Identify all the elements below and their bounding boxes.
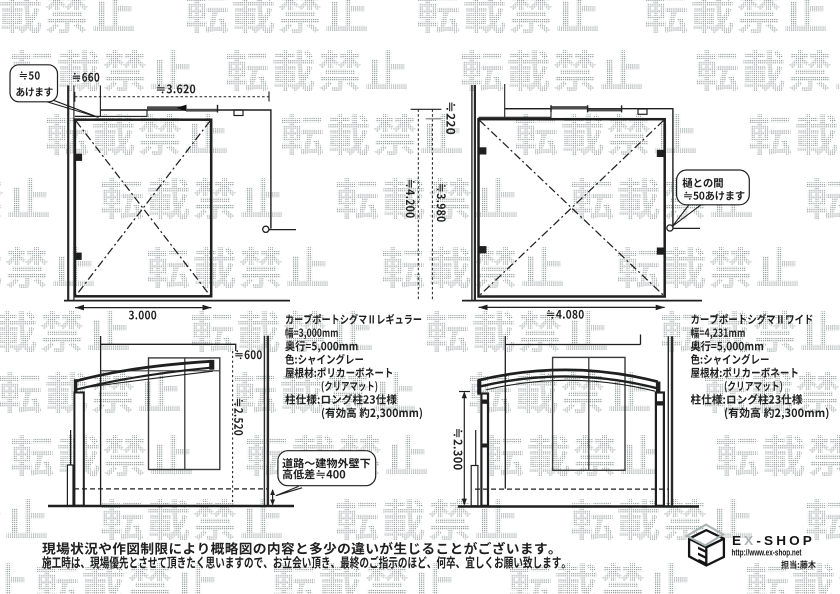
svg-text:http://www.ex-shop.net: http://www.ex-shop.net bbox=[732, 547, 802, 558]
